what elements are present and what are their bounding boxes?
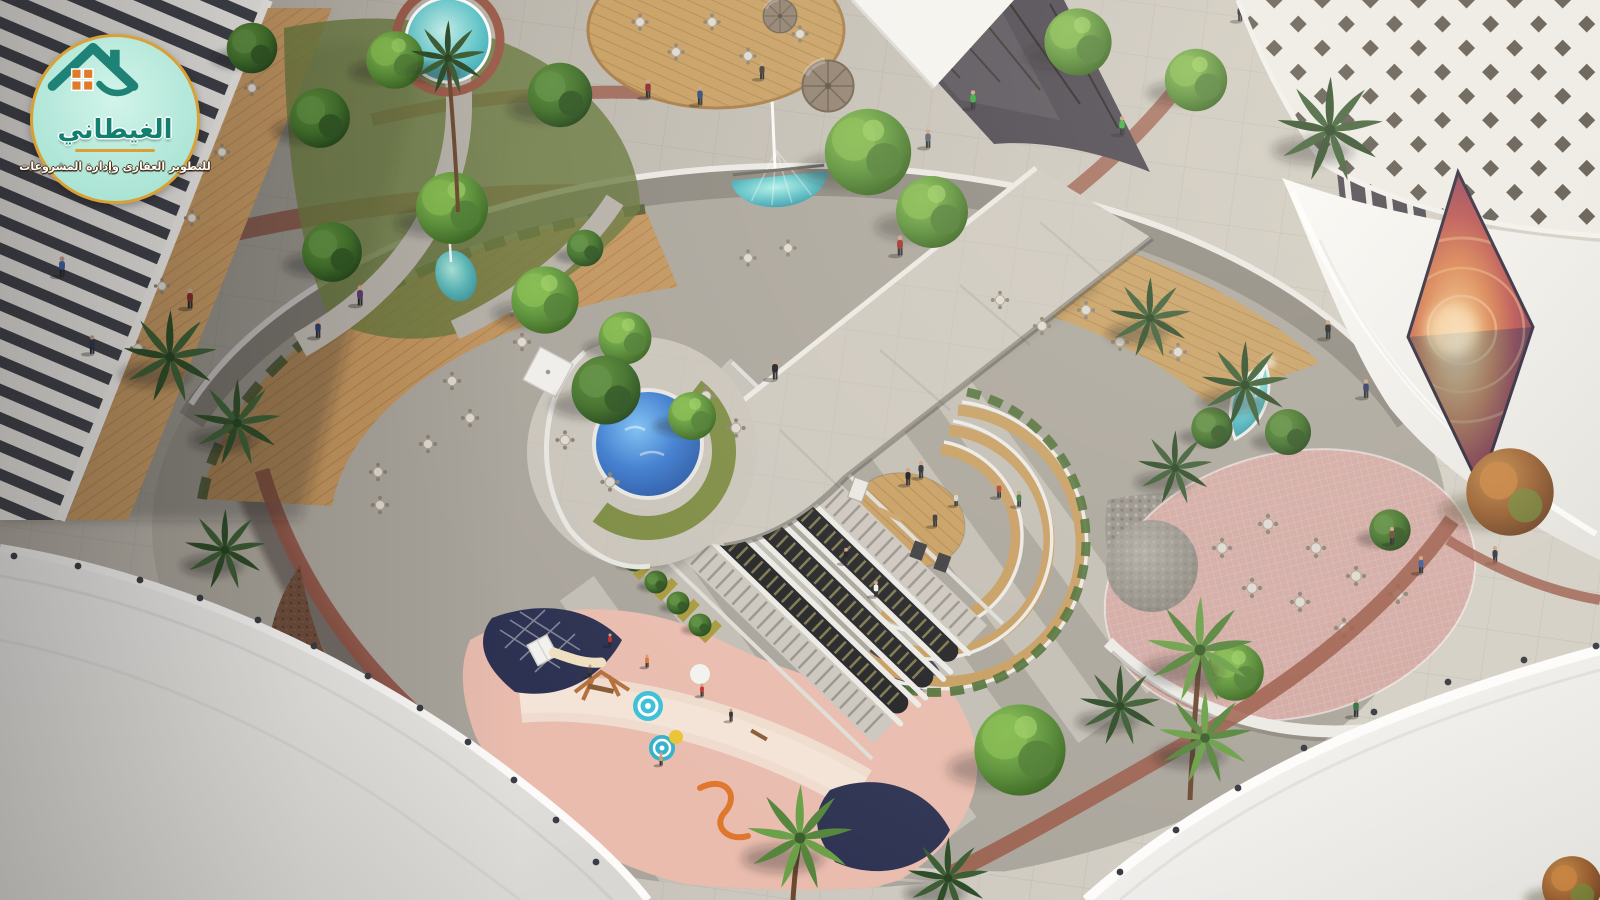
scene xyxy=(0,0,1600,900)
brand-underline xyxy=(75,149,155,152)
developer-logo-badge: الغيطاني للتطوير العقارى وإدارة المشروعا… xyxy=(30,34,194,198)
render-canvas: الغيطاني للتطوير العقارى وإدارة المشروعا… xyxy=(0,0,1600,900)
house-icon xyxy=(33,37,153,101)
brand-tagline: للتطوير العقارى وإدارة المشروعات xyxy=(15,161,215,174)
logo-circle: الغيطاني للتطوير العقارى وإدارة المشروعا… xyxy=(30,34,200,204)
brand-name: الغيطاني xyxy=(33,115,197,145)
